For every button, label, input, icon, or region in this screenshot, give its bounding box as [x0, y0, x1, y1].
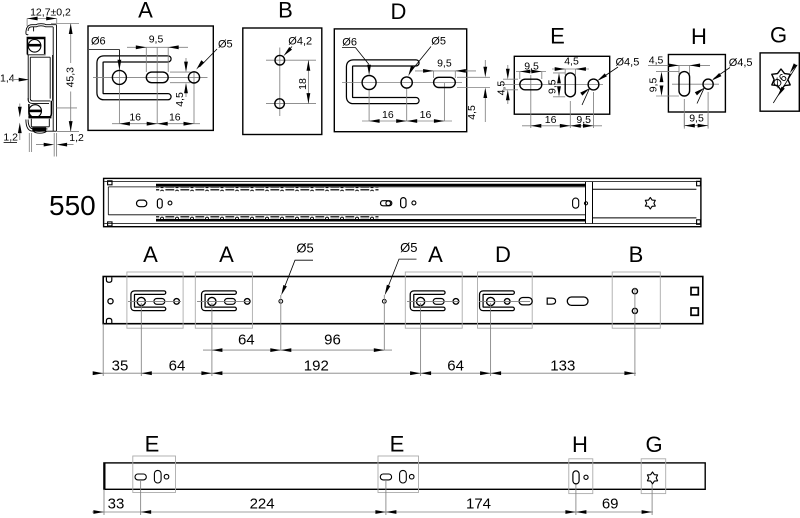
svg-text:B: B: [278, 0, 293, 23]
svg-text:224: 224: [250, 496, 275, 513]
svg-text:G: G: [645, 432, 662, 457]
svg-text:E: E: [390, 432, 405, 457]
svg-text:A: A: [219, 242, 234, 267]
svg-text:133: 133: [550, 357, 575, 374]
svg-text:64: 64: [238, 332, 255, 349]
svg-text:45,3: 45,3: [65, 67, 77, 88]
svg-text:Ø5: Ø5: [400, 240, 417, 255]
svg-text:35: 35: [112, 357, 129, 374]
svg-text:1,2: 1,2: [69, 132, 84, 144]
svg-text:16: 16: [382, 109, 394, 121]
svg-text:9,5: 9,5: [689, 113, 704, 125]
svg-text:Ø6: Ø6: [342, 36, 357, 48]
svg-text:64: 64: [447, 357, 464, 374]
svg-text:4,5: 4,5: [174, 92, 186, 107]
svg-text:9,5: 9,5: [547, 79, 559, 94]
svg-text:192: 192: [304, 357, 329, 374]
svg-text:Ø4,5: Ø4,5: [729, 57, 753, 69]
svg-text:H: H: [691, 24, 707, 49]
svg-text:174: 174: [466, 496, 491, 513]
svg-text:Ø4,5: Ø4,5: [616, 57, 640, 69]
svg-text:E: E: [550, 24, 565, 49]
svg-text:69: 69: [602, 496, 619, 513]
svg-text:16: 16: [129, 112, 141, 124]
svg-text:9,5: 9,5: [437, 58, 452, 70]
svg-text:G: G: [770, 22, 787, 47]
svg-text:D: D: [495, 242, 511, 267]
svg-text:4,5: 4,5: [466, 105, 478, 120]
svg-text:16: 16: [169, 112, 181, 124]
svg-text:A: A: [138, 0, 153, 23]
svg-text:33: 33: [108, 496, 125, 513]
svg-text:12,7±0,2: 12,7±0,2: [30, 7, 71, 19]
svg-text:16: 16: [545, 114, 557, 126]
svg-text:550: 550: [49, 190, 96, 221]
svg-text:A: A: [428, 242, 443, 267]
svg-text:9,5: 9,5: [149, 34, 164, 46]
svg-text:18: 18: [297, 78, 309, 90]
svg-text:E: E: [145, 432, 160, 457]
svg-text:A: A: [143, 242, 158, 267]
svg-text:9,5: 9,5: [647, 78, 659, 93]
svg-text:4,5: 4,5: [649, 55, 664, 67]
svg-text:Ø4,2: Ø4,2: [288, 36, 312, 48]
svg-text:B: B: [629, 242, 644, 267]
svg-text:64: 64: [169, 357, 186, 374]
svg-text:Ø5: Ø5: [296, 241, 313, 256]
svg-text:Ø5: Ø5: [218, 39, 233, 51]
svg-text:96: 96: [324, 332, 341, 349]
svg-text:H: H: [572, 432, 588, 457]
svg-text:D: D: [391, 0, 407, 24]
svg-text:4,5: 4,5: [495, 81, 507, 96]
svg-text:16: 16: [420, 109, 432, 121]
svg-text:4,5: 4,5: [564, 56, 579, 68]
svg-text:1,4: 1,4: [0, 73, 15, 85]
svg-text:1,2: 1,2: [3, 132, 18, 144]
svg-text:Ø6: Ø6: [91, 36, 106, 48]
svg-text:Ø5: Ø5: [431, 36, 446, 48]
